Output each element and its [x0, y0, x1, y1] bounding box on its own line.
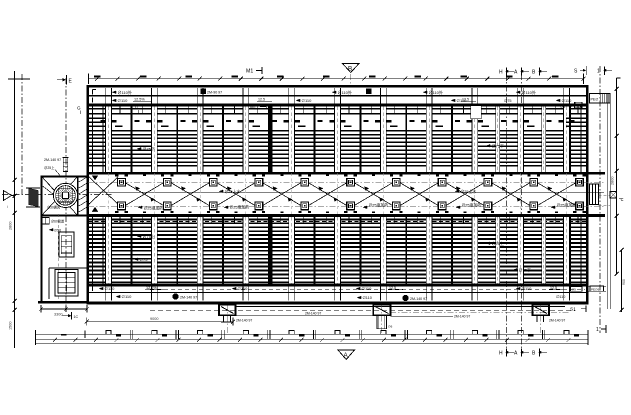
svg-text:∅75上: ∅75上	[143, 233, 155, 239]
svg-text:2M-140 97: 2M-140 97	[305, 312, 321, 316]
svg-text:∅110: ∅110	[238, 286, 249, 291]
svg-text:∅110: ∅110	[105, 286, 116, 291]
svg-text:3300: 3300	[54, 313, 62, 317]
svg-text:∅25液加药: ∅25液加药	[144, 206, 164, 211]
svg-text:∅9: ∅9	[572, 287, 577, 291]
svg-text:M1: M1	[250, 104, 257, 109]
svg-text:12.5: 12.5	[462, 98, 469, 102]
svg-text:2M-140 97: 2M-140 97	[44, 158, 61, 162]
svg-text:∅110: ∅110	[118, 98, 129, 103]
svg-text:2M-140 97: 2M-140 97	[454, 315, 470, 319]
svg-text:2M-140 97: 2M-140 97	[180, 296, 197, 300]
svg-text:2M-140 97: 2M-140 97	[549, 319, 565, 323]
svg-text:G: G	[77, 106, 81, 111]
svg-text:∅75: ∅75	[504, 99, 512, 103]
svg-text:∅25液加药: ∅25液加药	[462, 203, 482, 208]
svg-text:H: H	[499, 351, 503, 357]
svg-text:1: 1	[596, 327, 599, 333]
svg-text:∅75: ∅75	[140, 257, 149, 262]
svg-text:∅110: ∅110	[122, 294, 133, 299]
svg-text:∅110外: ∅110外	[118, 89, 132, 95]
svg-text:900: 900	[622, 279, 626, 285]
svg-text:1500: 1500	[9, 322, 13, 330]
svg-text:∅25液加药: ∅25液加药	[230, 205, 250, 210]
svg-text:B: B	[348, 66, 352, 73]
svg-text:12.5%: 12.5%	[146, 286, 157, 290]
svg-text:∅75下: ∅75下	[519, 267, 531, 272]
svg-text:12.5: 12.5	[550, 286, 557, 290]
svg-text:1: 1	[597, 69, 600, 75]
svg-text:2M-140 97: 2M-140 97	[236, 319, 252, 323]
svg-text:1C: 1C	[74, 315, 79, 319]
svg-text:∅75下: ∅75下	[143, 146, 155, 151]
svg-text:∅6: ∅6	[388, 325, 393, 329]
svg-text:∅25上: ∅25上	[44, 165, 55, 170]
svg-text:∅110: ∅110	[362, 286, 373, 291]
svg-text:∅110: ∅110	[363, 296, 372, 300]
svg-text:H: H	[499, 70, 503, 76]
svg-text:2800: 2800	[9, 222, 13, 230]
svg-text:9000: 9000	[150, 317, 158, 321]
svg-text:∅110: ∅110	[562, 98, 573, 103]
svg-text:PE∅: PE∅	[591, 98, 600, 102]
svg-text:M1: M1	[246, 69, 253, 75]
svg-text:∅25液加药: ∅25液加药	[369, 203, 389, 208]
svg-text:2M-140 97: 2M-140 97	[410, 297, 427, 301]
svg-text:∅25液加药: ∅25液加药	[557, 203, 577, 208]
svg-text:∅75上: ∅75上	[492, 240, 504, 246]
svg-text:12.5: 12.5	[258, 98, 265, 102]
svg-text:12.5: 12.5	[389, 286, 396, 290]
svg-text:∅25上水: ∅25上水	[461, 189, 477, 194]
svg-text:∅50拥风: ∅50拥风	[47, 205, 61, 210]
svg-text:∅110外: ∅110外	[429, 89, 443, 95]
svg-text:S1: S1	[570, 307, 576, 313]
svg-text:S1: S1	[560, 104, 566, 109]
svg-text:∅25上水: ∅25上水	[225, 189, 241, 194]
svg-text:2800: 2800	[611, 177, 615, 185]
svg-text:PE∅6: PE∅6	[591, 287, 600, 291]
svg-text:∅110: ∅110	[302, 98, 313, 103]
svg-text:G: G	[135, 105, 138, 110]
svg-text:12.5%: 12.5%	[134, 98, 145, 102]
svg-text:∅110: ∅110	[556, 295, 565, 299]
svg-text:2M-90 97: 2M-90 97	[207, 91, 222, 95]
svg-text:∅110外: ∅110外	[522, 89, 536, 95]
svg-text:∅110: ∅110	[522, 286, 533, 291]
svg-text:℃: ℃	[619, 197, 624, 202]
svg-text:∅75下: ∅75下	[492, 143, 504, 148]
svg-text:∅110外: ∅110外	[338, 89, 352, 95]
